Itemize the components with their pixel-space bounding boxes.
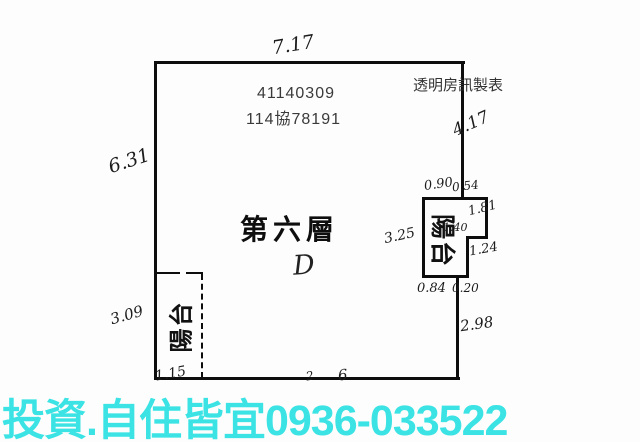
balcony-right-bottom-wall xyxy=(422,275,469,278)
dim-bottom-width: 6 xyxy=(337,366,348,385)
ad-banner-text: 投資.自住皆宜0936-033522 xyxy=(2,386,507,442)
dim-left-balcony-height: 3.09 xyxy=(108,302,145,329)
dim-right-lower-height: 2.98 xyxy=(459,313,495,335)
unit-letter-label: D xyxy=(292,249,316,281)
balcony-right-step-wall xyxy=(466,236,488,239)
dim-balcony-top-left: 0.90 xyxy=(423,175,454,194)
dim-bottom-partial: 2 xyxy=(305,368,315,383)
dim-balcony-bottom-right: 0.20 xyxy=(452,281,479,295)
wall-top xyxy=(154,61,465,64)
case-id-number: 41140309 xyxy=(257,85,335,103)
balcony-left-label: 陽台 xyxy=(162,301,197,353)
dim-bottom-left-width: 1.15 xyxy=(154,363,187,384)
balcony-left-dashed-wall xyxy=(201,274,203,378)
dim-top-width: 7.17 xyxy=(271,31,316,59)
floor-label: 第六層 xyxy=(240,208,339,248)
registration-number: 114協78191 xyxy=(246,105,341,129)
balcony-right-inner-wall xyxy=(422,197,425,278)
floorplan-scan: 41140309 114協78191 透明房訊製表 第六層 D 陽台 陽台 7.… xyxy=(0,0,640,442)
dim-balcony-right-side: 3.25 xyxy=(383,225,417,247)
balcony-right-outer-lower-wall xyxy=(466,236,469,278)
dim-balcony-top-right: 0.54 xyxy=(451,178,479,195)
dim-balcony-outer-lower: 1.24 xyxy=(468,240,499,260)
balcony-left-top-seg1 xyxy=(154,272,180,274)
wall-left xyxy=(154,61,157,380)
maker-label: 透明房訊製表 xyxy=(413,74,503,95)
dim-balcony-outer-upper: 1.81 xyxy=(467,198,499,220)
dim-balcony-inner: 1.40 xyxy=(443,221,468,234)
dim-left-height: 6.31 xyxy=(106,144,153,178)
dim-balcony-bottom-left: 0.84 xyxy=(417,281,446,296)
balcony-right-top-wall xyxy=(422,197,488,200)
dim-right-upper-height: 4.17 xyxy=(450,107,493,141)
